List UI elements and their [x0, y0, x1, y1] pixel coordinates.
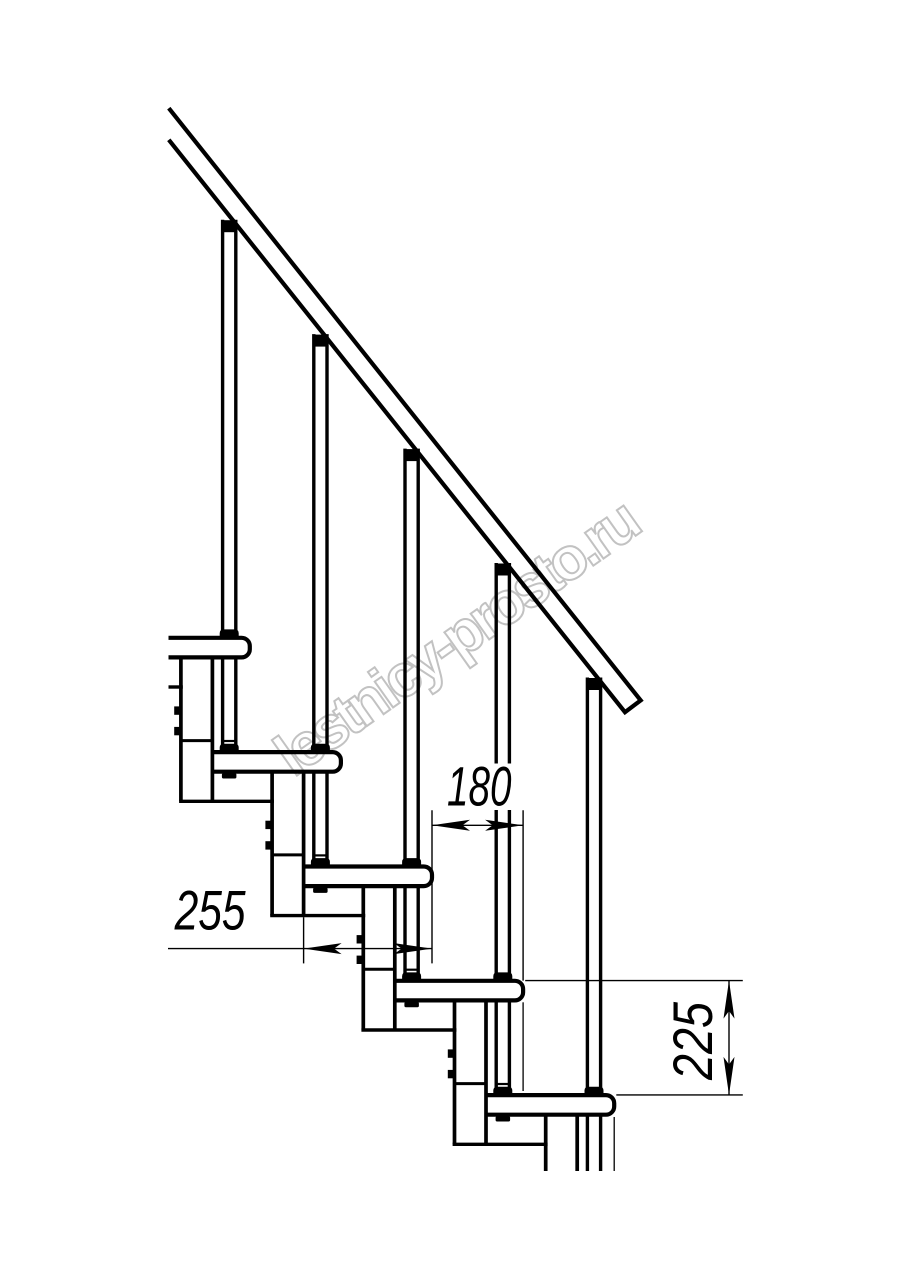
- svg-text:255: 255: [174, 879, 246, 942]
- svg-text:180: 180: [447, 755, 512, 818]
- svg-text:225: 225: [661, 1002, 724, 1081]
